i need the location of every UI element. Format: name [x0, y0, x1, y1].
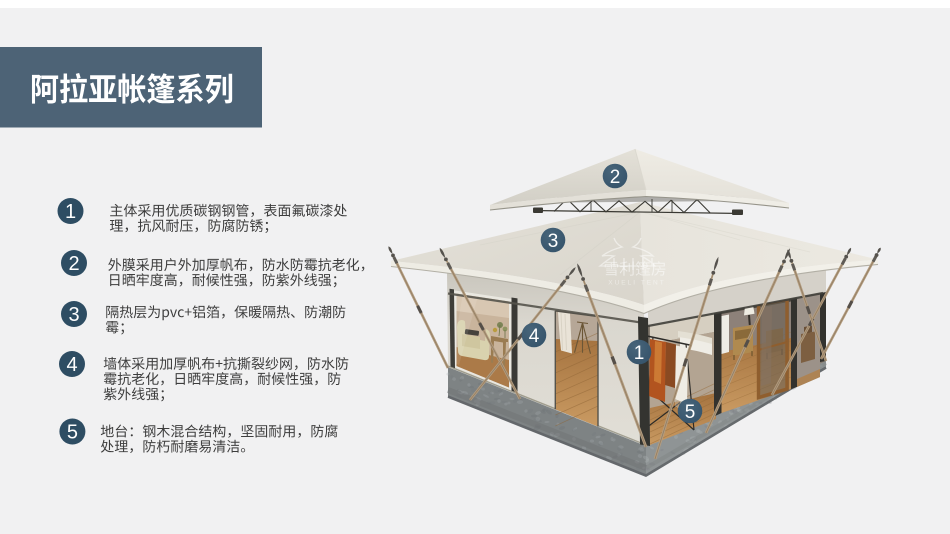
svg-text:4: 4 — [529, 326, 540, 347]
svg-text:2: 2 — [610, 167, 621, 188]
svg-text:3: 3 — [548, 231, 559, 252]
svg-text:1: 1 — [65, 201, 76, 223]
svg-text:3: 3 — [68, 304, 79, 326]
svg-text:5: 5 — [67, 422, 78, 444]
svg-text:1: 1 — [634, 343, 645, 364]
svg-text:5: 5 — [685, 402, 696, 423]
svg-text:XUELI TENT: XUELI TENT — [608, 280, 665, 287]
svg-text:2: 2 — [68, 253, 79, 275]
svg-text:4: 4 — [66, 354, 77, 376]
